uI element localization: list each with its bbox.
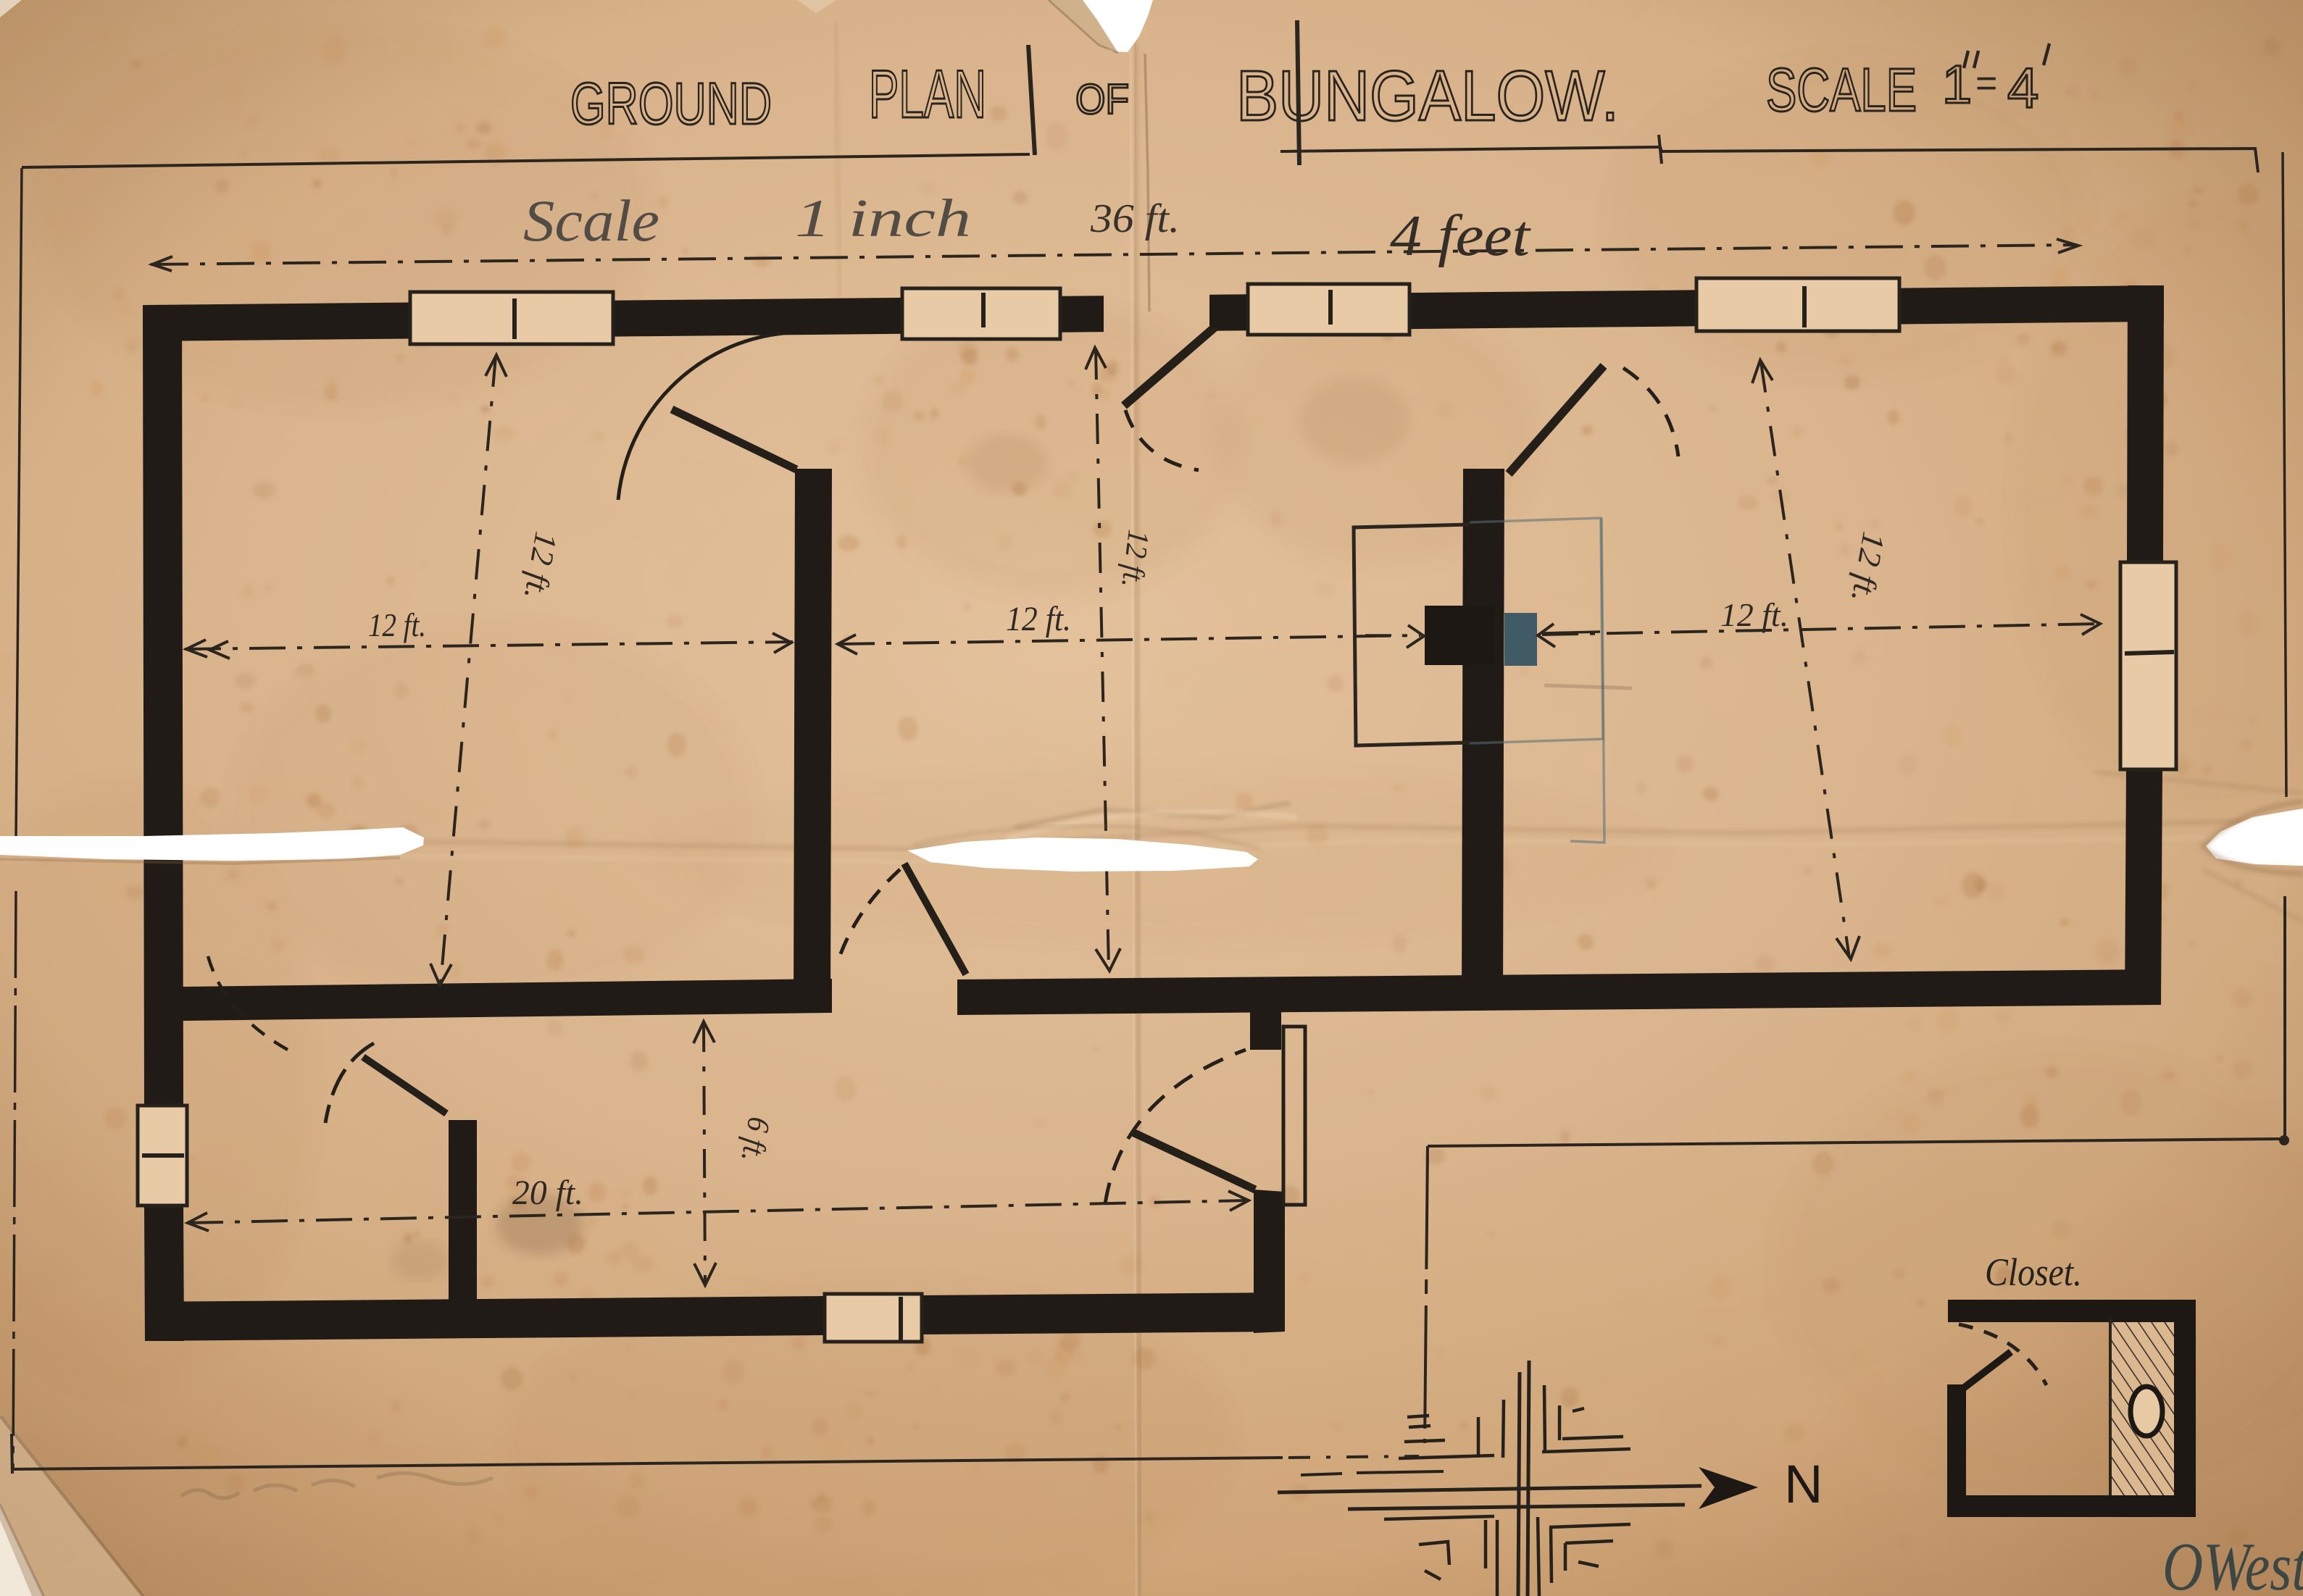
svg-text:OWest: OWest [2162, 1529, 2303, 1596]
svg-text:4 feet: 4 feet [1390, 204, 1531, 268]
svg-text:12 ft.: 12 ft. [1115, 528, 1154, 590]
svg-text:12 ft.: 12 ft. [368, 606, 426, 643]
svg-text:BUNGALOW.: BUNGALOW. [1236, 56, 1619, 135]
svg-text:1: 1 [1942, 54, 1972, 114]
svg-text:PLAN: PLAN [869, 56, 986, 132]
svg-text:36 ft.: 36 ft. [1090, 196, 1180, 241]
svg-text:12 ft.: 12 ft. [1006, 600, 1071, 638]
svg-text:N: N [1784, 1454, 1823, 1514]
svg-text:GROUND: GROUND [570, 71, 772, 137]
svg-text:Scale: Scale [523, 188, 659, 254]
svg-text:Closet.: Closet. [1985, 1250, 2082, 1294]
svg-text:4: 4 [2007, 56, 2038, 120]
svg-text:12 ft.: 12 ft. [1720, 596, 1788, 633]
svg-text:1 inch: 1 inch [795, 189, 971, 248]
svg-text:SCALE: SCALE [1766, 56, 1917, 124]
svg-text:=: = [1975, 62, 1997, 104]
svg-text:20 ft.: 20 ft. [512, 1174, 583, 1212]
svg-text:OF: OF [1075, 76, 1129, 123]
